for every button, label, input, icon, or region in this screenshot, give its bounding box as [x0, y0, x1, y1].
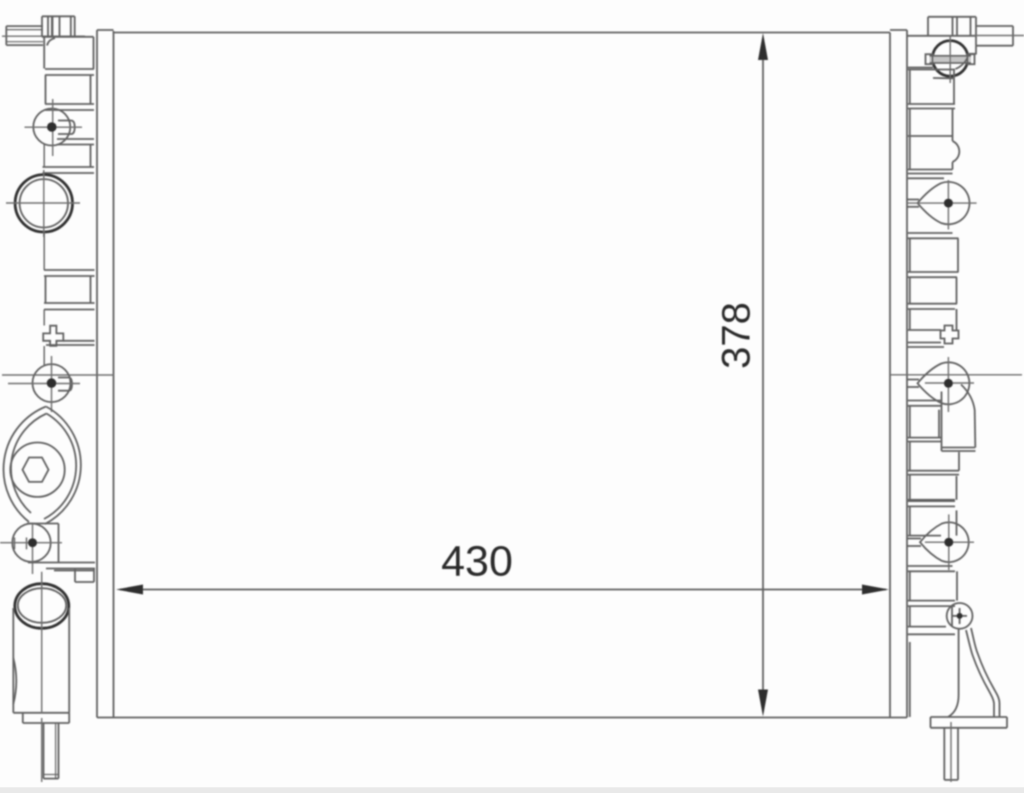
svg-text:430: 430: [441, 538, 513, 586]
svg-text:378: 378: [715, 302, 759, 369]
